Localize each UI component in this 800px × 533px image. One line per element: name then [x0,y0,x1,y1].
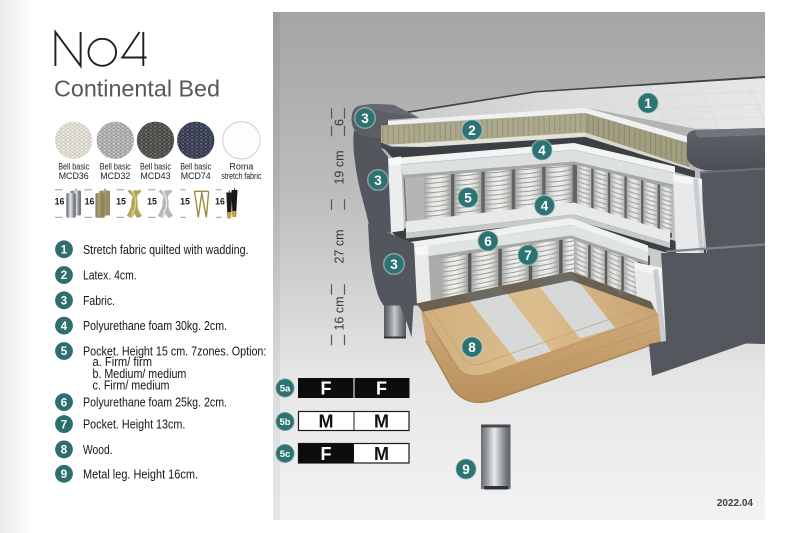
svg-text:6: 6 [333,119,347,126]
svg-text:Pocket. Height 13cm.: Pocket. Height 13cm. [83,417,185,432]
svg-text:4: 4 [61,321,68,333]
svg-text:5: 5 [464,190,472,205]
svg-text:27 cm: 27 cm [333,229,347,263]
svg-text:F: F [321,444,332,464]
svg-text:Polyurethane foam 25kg. 2cm.: Polyurethane foam 25kg. 2cm. [83,395,227,410]
svg-text:MCD32: MCD32 [100,171,130,182]
svg-text:Polyurethane foam 30kg. 2cm.: Polyurethane foam 30kg. 2cm. [83,318,227,333]
svg-text:7: 7 [524,248,532,263]
svg-text:Continental Bed: Continental Bed [54,75,220,101]
svg-text:M: M [319,412,334,432]
svg-text:3: 3 [374,173,382,188]
svg-text:F: F [376,379,387,399]
svg-text:16: 16 [215,197,225,207]
svg-text:Wood.: Wood. [83,442,113,457]
svg-text:MCD43: MCD43 [141,171,171,182]
svg-text:8: 8 [468,340,476,355]
svg-text:4: 4 [541,198,549,213]
svg-text:Latex. 4cm.: Latex. 4cm. [83,268,137,283]
svg-text:16: 16 [55,197,65,207]
svg-text:8: 8 [61,445,68,457]
svg-text:c. Firm/ medium: c. Firm/ medium [93,378,170,393]
svg-text:5b: 5b [279,417,290,428]
svg-text:15: 15 [180,197,190,207]
svg-text:6: 6 [61,397,67,409]
svg-text:6: 6 [484,234,492,249]
svg-text:1: 1 [61,245,68,257]
svg-text:2: 2 [468,123,476,138]
svg-text:Metal leg. Height 16cm.: Metal leg. Height 16cm. [83,466,198,481]
svg-text:15: 15 [116,197,126,207]
svg-text:stretch fabric: stretch fabric [221,171,261,182]
svg-text:4: 4 [538,143,546,158]
svg-text:9: 9 [462,462,470,477]
svg-text:19 cm: 19 cm [333,150,347,184]
svg-text:3: 3 [390,257,398,272]
svg-text:2: 2 [61,270,67,282]
svg-text:M: M [374,444,389,464]
svg-text:9: 9 [61,469,67,481]
svg-text:1: 1 [644,96,652,111]
svg-text:F: F [321,379,332,399]
svg-text:16 cm: 16 cm [333,296,347,330]
svg-text:MCD74: MCD74 [181,171,212,182]
svg-text:16: 16 [85,197,95,207]
svg-text:M: M [374,412,389,432]
svg-text:Stretch fabric quilted with wa: Stretch fabric quilted with wadding. [83,242,249,257]
svg-text:Fabric.: Fabric. [83,293,115,308]
svg-text:15: 15 [147,197,157,207]
svg-text:3: 3 [61,296,67,308]
svg-text:MCD36: MCD36 [59,171,89,182]
svg-text:2022.04: 2022.04 [717,498,754,509]
svg-text:5: 5 [61,346,68,358]
svg-text:7: 7 [61,419,67,431]
svg-text:5a: 5a [280,383,291,394]
svg-text:5c: 5c [280,449,291,460]
svg-text:3: 3 [361,111,369,126]
